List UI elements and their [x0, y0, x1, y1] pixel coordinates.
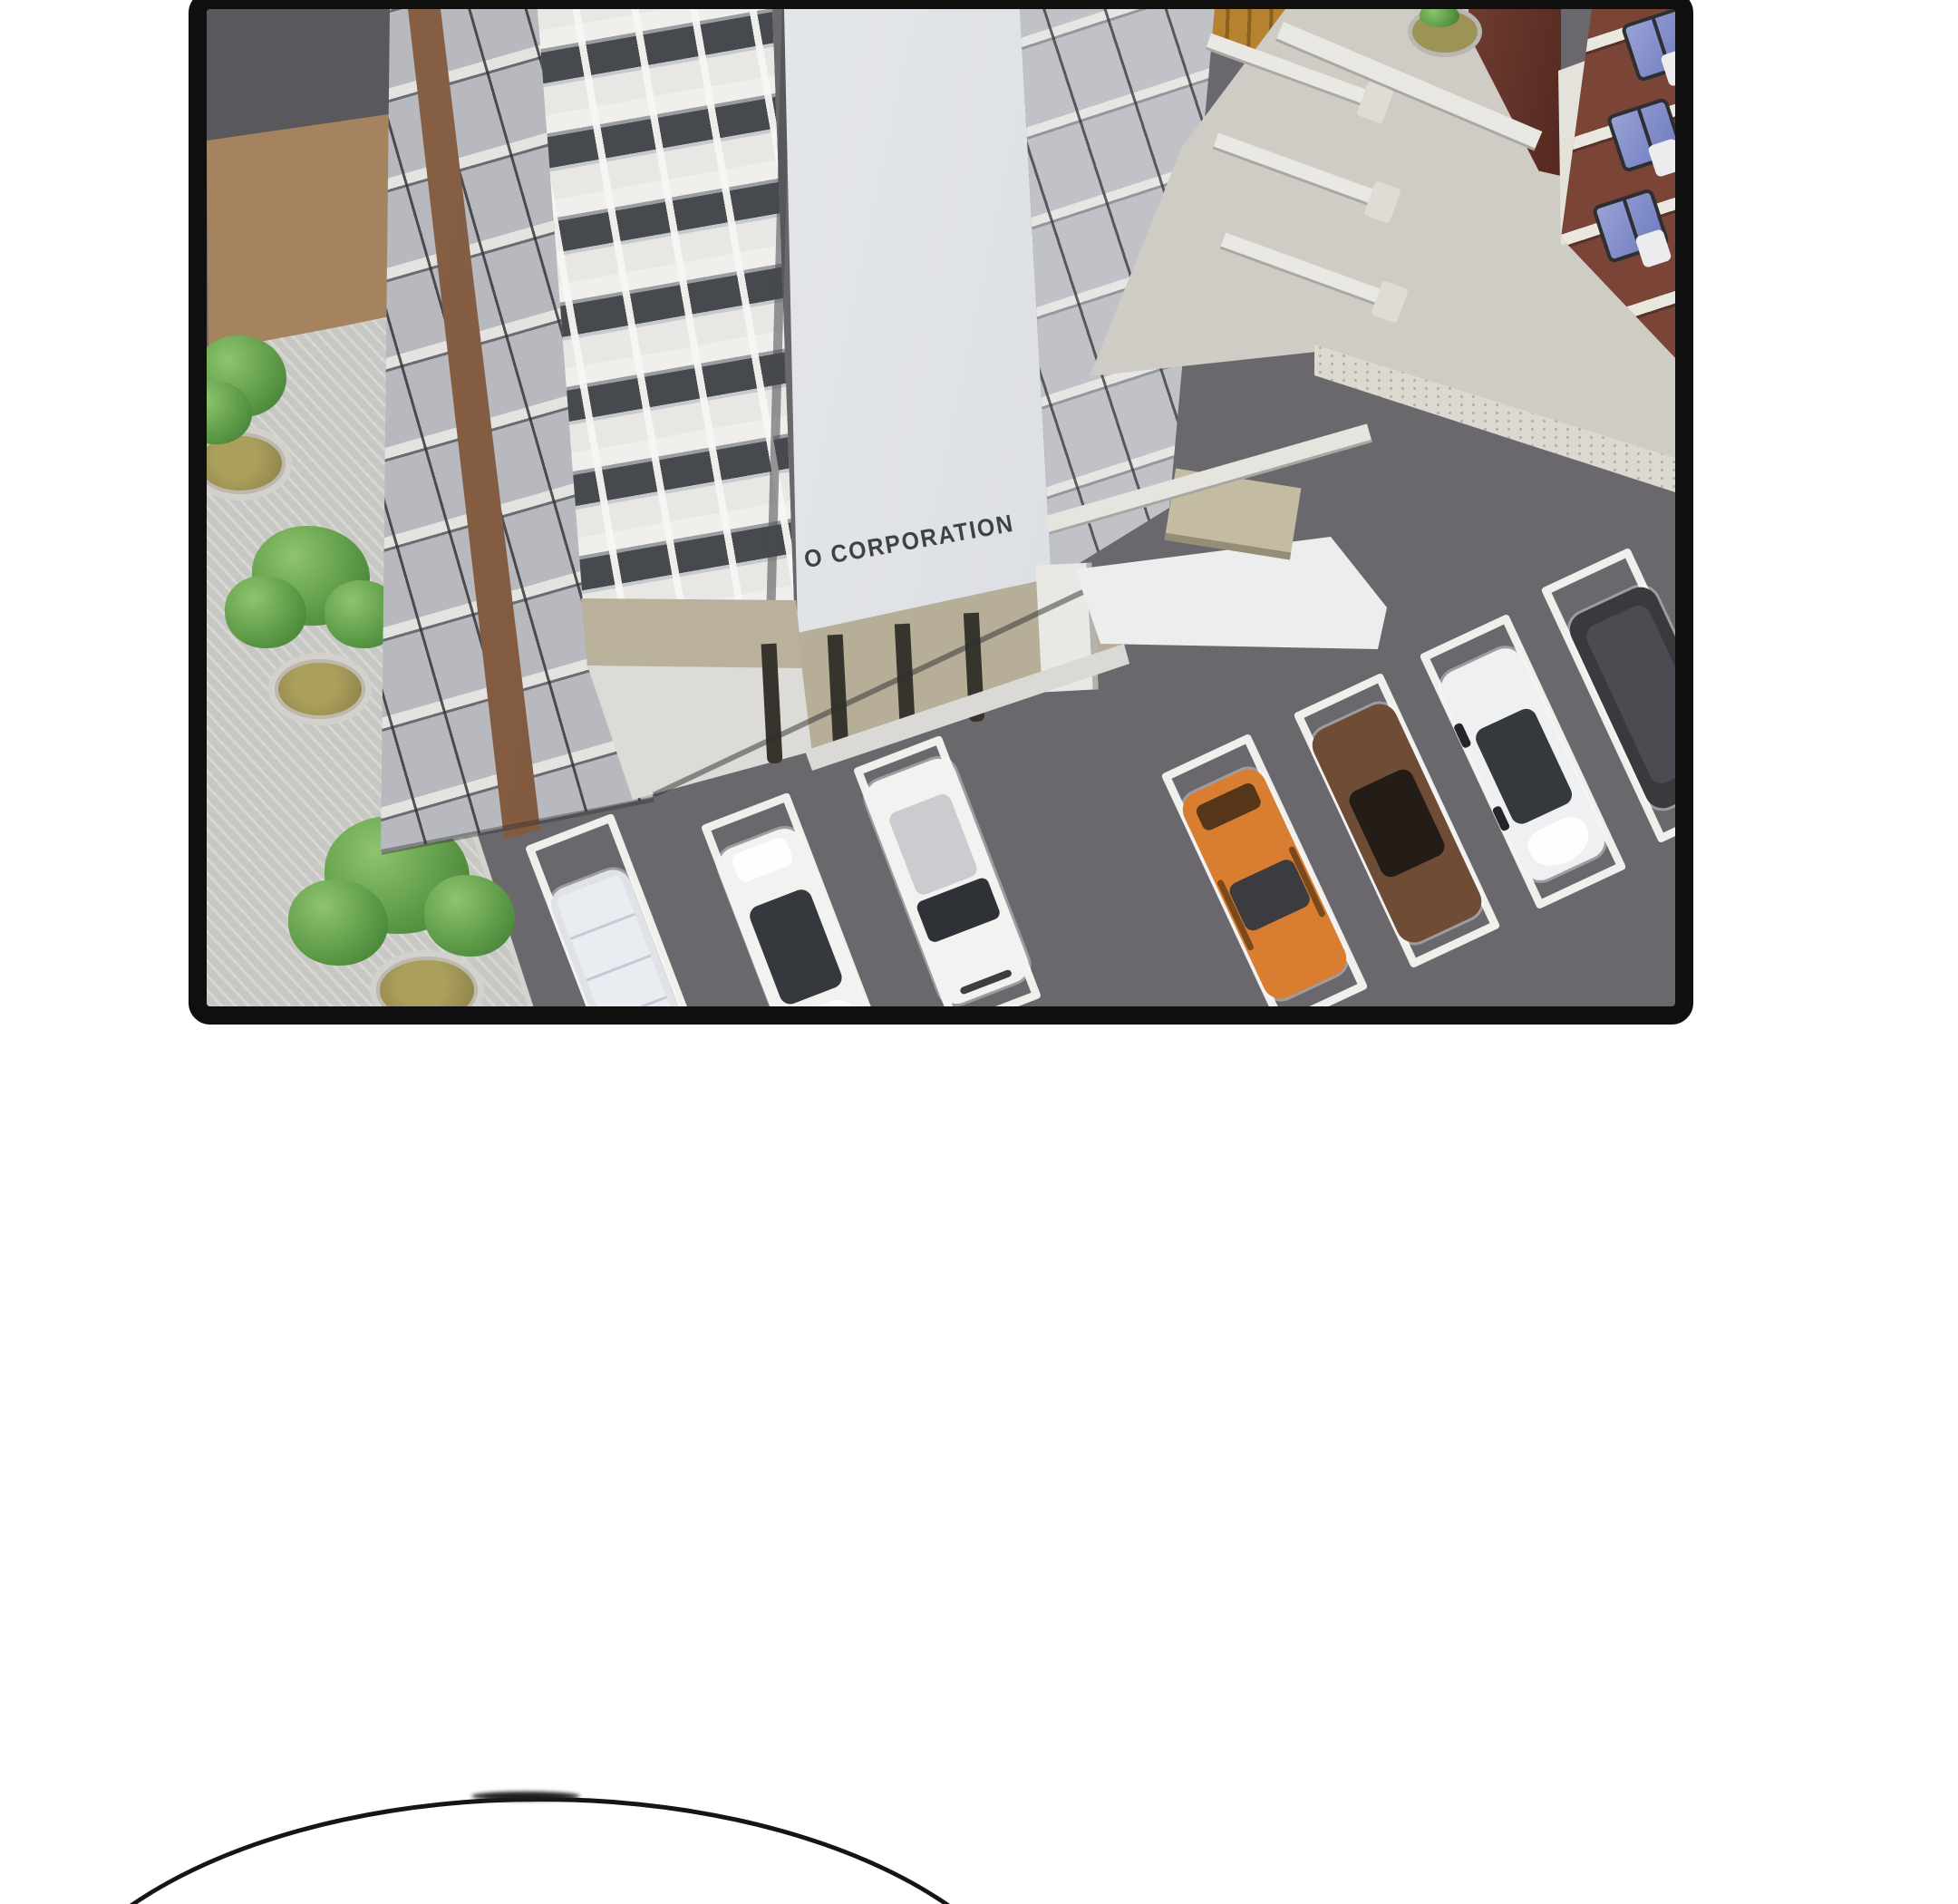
scene-3d-render: O CORPORATION — [207, 9, 1675, 1006]
planter-foliage — [1420, 4, 1459, 27]
sedan-glass — [1472, 705, 1575, 828]
suv-roof-panel — [887, 792, 980, 897]
tree-foliage — [288, 879, 388, 966]
suv-roof-panel — [1583, 601, 1693, 787]
roadside-planter — [1408, 6, 1482, 57]
van-windshield — [613, 1015, 682, 1025]
tree-foliage — [225, 576, 306, 648]
car-orange-hatchback — [1177, 763, 1352, 1005]
page-background: O CORPORATION — [0, 0, 1958, 1904]
speech-bubble — [25, 1797, 1054, 1904]
car-white-suv — [861, 753, 1034, 1009]
hatchback-rear-window — [1194, 781, 1263, 832]
comic-panel: O CORPORATION — [189, 0, 1693, 1025]
tree-1 — [189, 335, 315, 517]
van-roof — [555, 874, 672, 1025]
tree-planter — [189, 426, 292, 500]
tree-planter — [268, 653, 372, 725]
tree-foliage — [424, 875, 515, 957]
tree-planter — [370, 950, 484, 1025]
speech-bubble-ink-smudge — [471, 1792, 580, 1801]
